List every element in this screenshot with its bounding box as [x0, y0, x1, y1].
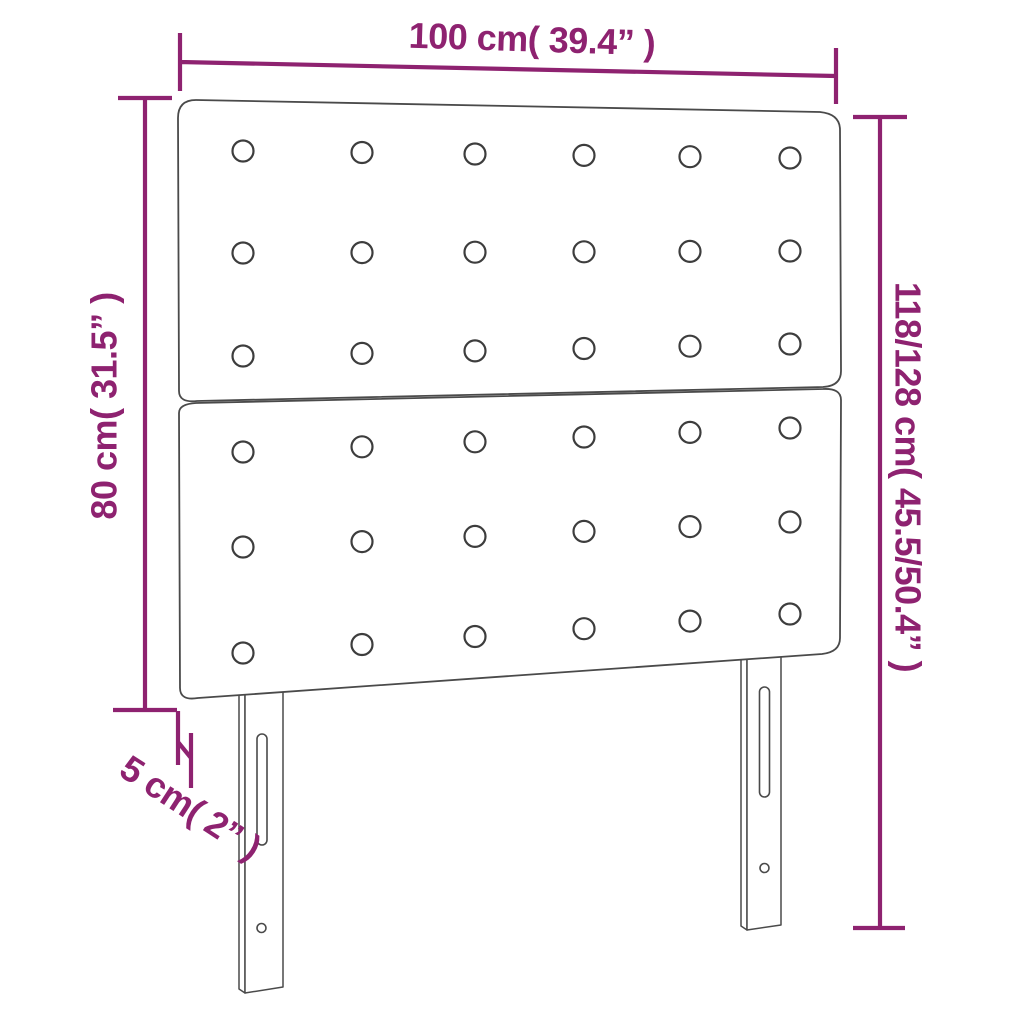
tufting-button [233, 537, 254, 558]
left-leg-screw-hole [257, 924, 266, 933]
tufting-button [780, 418, 801, 439]
tufting-button [680, 336, 701, 357]
tufting-button [233, 243, 254, 264]
total-height-label: 118/128 cm( 45.5/50.4” ) [888, 282, 929, 672]
tufting-button [574, 145, 595, 166]
tufting-button [352, 142, 373, 163]
tufting-button [352, 343, 373, 364]
tufting-button [780, 512, 801, 533]
tufting-button [780, 604, 801, 625]
board-height-label: 80 cm( 31.5” ) [84, 292, 125, 519]
tufting-button [680, 241, 701, 262]
tufting-button [465, 626, 486, 647]
diagram-canvas: 100 cm( 39.4” ) 80 cm( 31.5” ) 118/128 c… [0, 0, 1024, 1024]
tufting-button [680, 146, 701, 167]
tufting-button [465, 340, 486, 361]
upper-panel [178, 100, 841, 401]
tufting-button [574, 241, 595, 262]
tufting-button [574, 427, 595, 448]
tufting-button [680, 422, 701, 443]
tufting-button [465, 526, 486, 547]
tufting-button [465, 144, 486, 165]
right-leg-slot [760, 687, 770, 797]
tufting-button [574, 338, 595, 359]
headboard-dimension-diagram: 100 cm( 39.4” ) 80 cm( 31.5” ) 118/128 c… [0, 0, 1024, 1024]
tufting-button [574, 618, 595, 639]
tufting-button [780, 148, 801, 169]
tufting-button [233, 643, 254, 664]
right-leg [741, 643, 781, 930]
tufting-button [780, 241, 801, 262]
tufting-button [780, 334, 801, 355]
tufting-button [233, 442, 254, 463]
tufting-button [680, 611, 701, 632]
tufting-button [233, 346, 254, 367]
right-leg-screw-hole [760, 864, 769, 873]
tufting-button [352, 242, 373, 263]
headboard [178, 100, 841, 699]
tufting-button [352, 531, 373, 552]
legs [239, 643, 781, 993]
width-label: 100 cm( 39.4” ) [408, 15, 656, 64]
right-leg-side-face [741, 645, 747, 930]
tufting-button [574, 521, 595, 542]
tufting-button [233, 141, 254, 162]
tufting-button [352, 634, 373, 655]
lower-panel [179, 389, 841, 699]
tufting-button [465, 242, 486, 263]
tufting-button [465, 431, 486, 452]
tufting-button [352, 436, 373, 457]
tufting-button [680, 516, 701, 537]
